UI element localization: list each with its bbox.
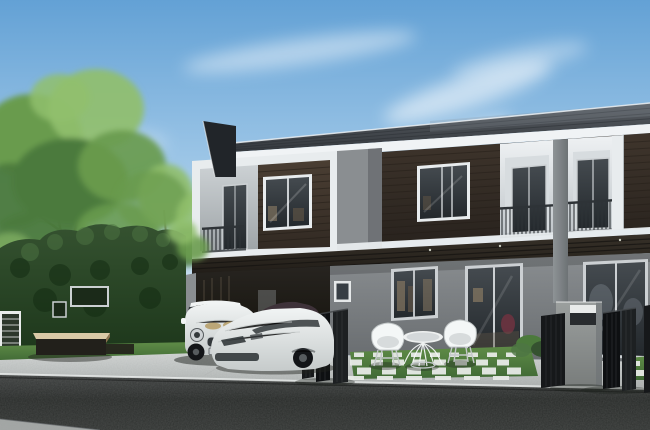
balcony-bay-2 — [568, 136, 614, 232]
unit2-second-floor — [382, 133, 650, 242]
scene: Architectural rendering of a modern two-… — [0, 0, 650, 430]
interior-chair — [501, 314, 515, 334]
balcony-bay-1 — [500, 140, 553, 238]
unit1-balcony-door — [223, 184, 247, 250]
side-mirror — [181, 318, 186, 324]
party-wall — [337, 148, 382, 254]
mailbox — [570, 305, 596, 325]
wall-picture-frame — [334, 281, 351, 302]
ground-window-unit2 — [391, 266, 438, 321]
divider-pillar — [553, 139, 568, 303]
unit1-window — [263, 174, 312, 231]
white-corner-post — [612, 135, 624, 230]
front-intake — [215, 353, 259, 361]
hood-vent — [205, 323, 221, 330]
hedge-sign-small — [53, 302, 66, 317]
hedge-sign-large — [71, 287, 108, 306]
unit2-window — [417, 162, 470, 222]
townhouse-rendering: Architectural rendering of a modern two-… — [0, 0, 650, 430]
